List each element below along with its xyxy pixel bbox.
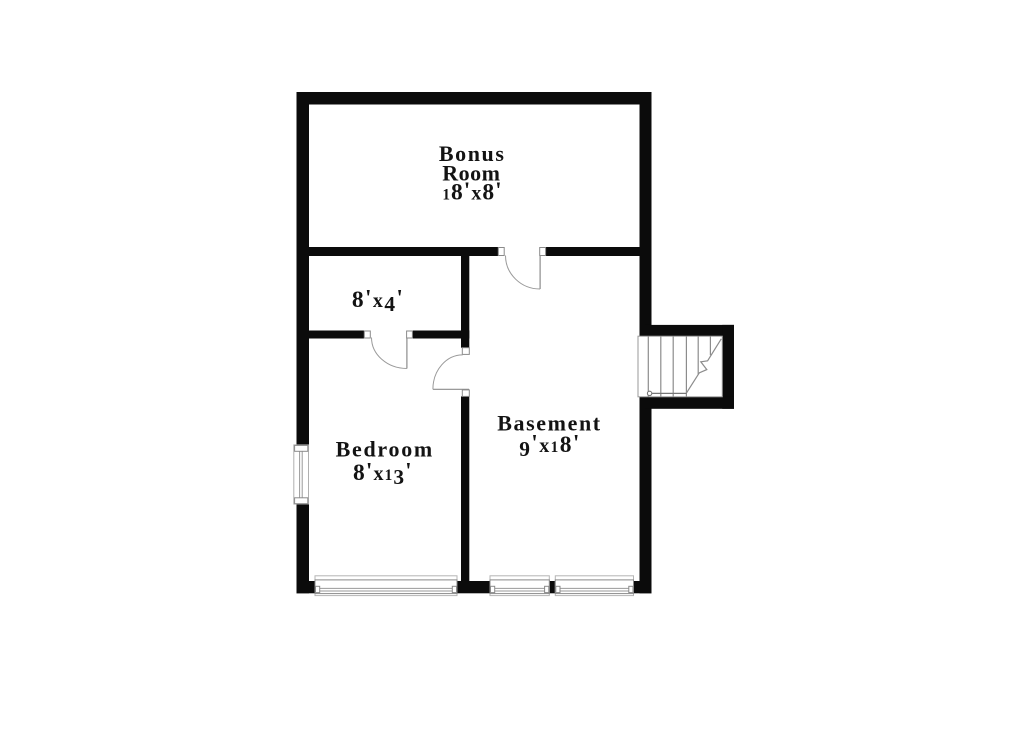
svg-text:8'x4': 8'x4' (352, 286, 405, 317)
svg-text:18'x8': 18'x8' (442, 178, 502, 206)
svg-text:Bedroom: Bedroom (336, 437, 434, 462)
svg-text:Basement: Basement (497, 411, 601, 436)
